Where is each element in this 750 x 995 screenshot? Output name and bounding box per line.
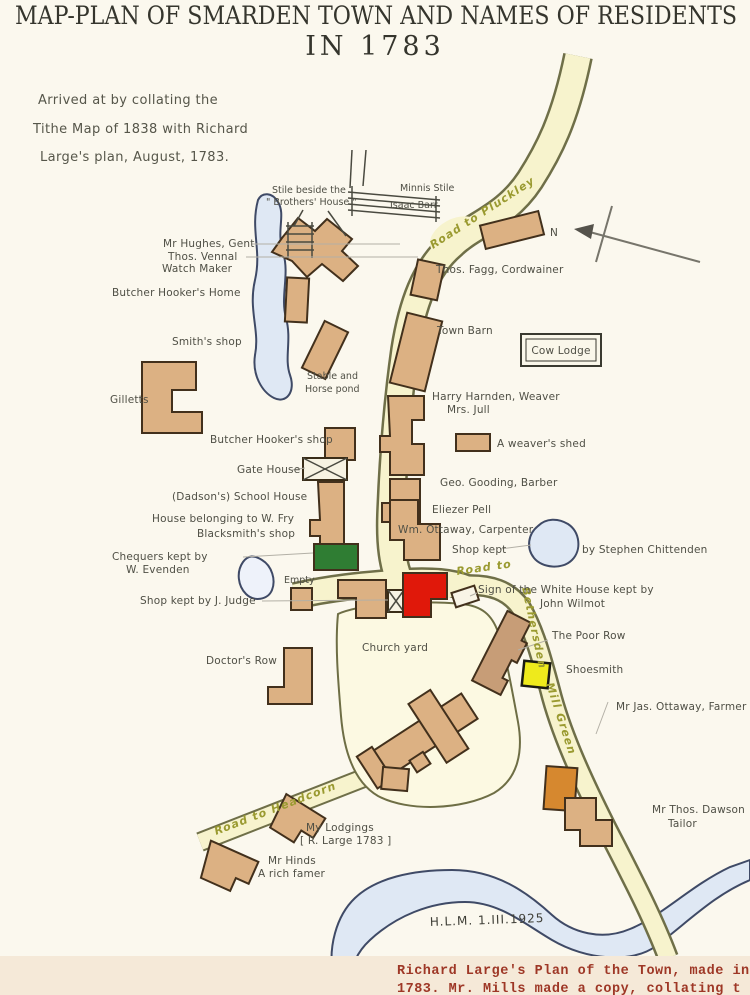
label-weavers-shed: A weaver's shed (497, 438, 586, 450)
label-lodgings-1: My Lodgings (306, 822, 374, 834)
label-school-house: (Dadson's) School House (172, 491, 307, 503)
label-chequers-2: W. Evenden (126, 564, 190, 576)
label-judge: Shop kept by J. Judge (140, 595, 256, 607)
crossed-square-building (388, 590, 404, 612)
label-harnden: Harry Harnden, Weaver (432, 391, 560, 403)
label-empty: Empty (284, 575, 315, 586)
map-title-year: IN 1783 (305, 31, 445, 62)
label-fry-house: House belonging to W. Fry (152, 513, 294, 525)
label-shop-kept: Shop kept (452, 544, 507, 556)
collation-note-line1: Arrived at by collating the (38, 93, 218, 108)
label-vennal-2: Watch Maker (162, 263, 233, 275)
cow-lodge-label: Cow Lodge (531, 345, 590, 357)
label-church-yard: Church yard (362, 642, 428, 654)
label-hinds-2: A rich famer (258, 868, 326, 880)
label-isaac-barr: Isaac Barr (390, 200, 438, 211)
typed-caption-line2: 1783. Mr. Mills made a copy, collating t (397, 982, 741, 995)
label-stable-2: Horse pond (305, 384, 360, 395)
typed-caption-line1: Richard Large's Plan of the Town, made i… (397, 964, 750, 979)
label-shoesmith: Shoesmith (566, 664, 623, 676)
compass-north-label: N (550, 227, 558, 239)
label-hooker-home: Butcher Hooker's Home (112, 287, 241, 299)
cow-lodge-box: Cow Lodge (521, 334, 601, 366)
label-lodgings-2: [ R. Large 1783 ] (300, 835, 391, 847)
label-white-house-2: John Wilmot (539, 598, 605, 610)
label-pell: Eliezer Pell (432, 504, 491, 516)
label-blacksmith: Blacksmith's shop (197, 528, 295, 540)
label-stile-brothers-2: " Brothers' House " (266, 197, 357, 208)
label-minnis-stile: Minnis Stile (400, 183, 455, 194)
collation-note-line2: Tithe Map of 1838 with Richard (32, 122, 248, 137)
label-doctors-row: Doctor's Row (206, 655, 277, 667)
label-stable-1: Stable and (307, 371, 358, 382)
label-chittenden: by Stephen Chittenden (582, 544, 707, 556)
label-town-barn: Town Barn (436, 325, 493, 337)
weavers-shed-building (456, 434, 490, 451)
label-stile-brothers-1: Stile beside the (272, 185, 346, 196)
label-hinds-1: Mr Hinds (268, 855, 316, 867)
chittenden-pond (529, 520, 578, 567)
label-poor-row: The Poor Row (551, 630, 626, 642)
label-fagg: Thos. Fagg, Cordwainer (435, 264, 564, 276)
label-hughes: Mr Hughes, Gent (163, 238, 255, 250)
map-page: Cow Lodge MAP-PLAN OF SMARDEN TOWN AND N… (0, 0, 750, 995)
label-smiths-shop: Smith's shop (172, 336, 242, 348)
map-title: MAP-PLAN OF SMARDEN TOWN AND NAMES OF RE… (15, 1, 737, 30)
label-hooker-shop: Butcher Hooker's shop (210, 434, 333, 446)
chequers-building (314, 544, 358, 570)
label-ottaway-carpenter: Wm. Ottaway, Carpenter (398, 524, 534, 536)
label-dawson-2: Tailor (667, 818, 697, 830)
gate-house-building (303, 458, 347, 480)
hooker-home-building (285, 277, 309, 322)
label-gooding: Geo. Gooding, Barber (440, 477, 558, 489)
label-vennal-1: Thos. Vennal (167, 251, 238, 263)
label-gate-house: Gate House (237, 464, 300, 476)
label-jull: Mrs. Jull (447, 404, 490, 416)
label-dawson-1: Mr Thos. Dawson (652, 804, 745, 816)
collation-note-line3: Large's plan, August, 1783. (40, 150, 229, 165)
empty-building (291, 588, 312, 610)
label-ottaway-farmer: Mr Jas. Ottaway, Farmer (616, 701, 747, 713)
small-building-south-churchyard (381, 767, 409, 791)
label-gilletts: Gilletts (110, 394, 149, 406)
smarden-map-canvas: Cow Lodge MAP-PLAN OF SMARDEN TOWN AND N… (0, 0, 750, 995)
label-chequers-1: Chequers kept by (112, 551, 208, 563)
label-white-house-1: Sign of the White House kept by (478, 584, 654, 596)
